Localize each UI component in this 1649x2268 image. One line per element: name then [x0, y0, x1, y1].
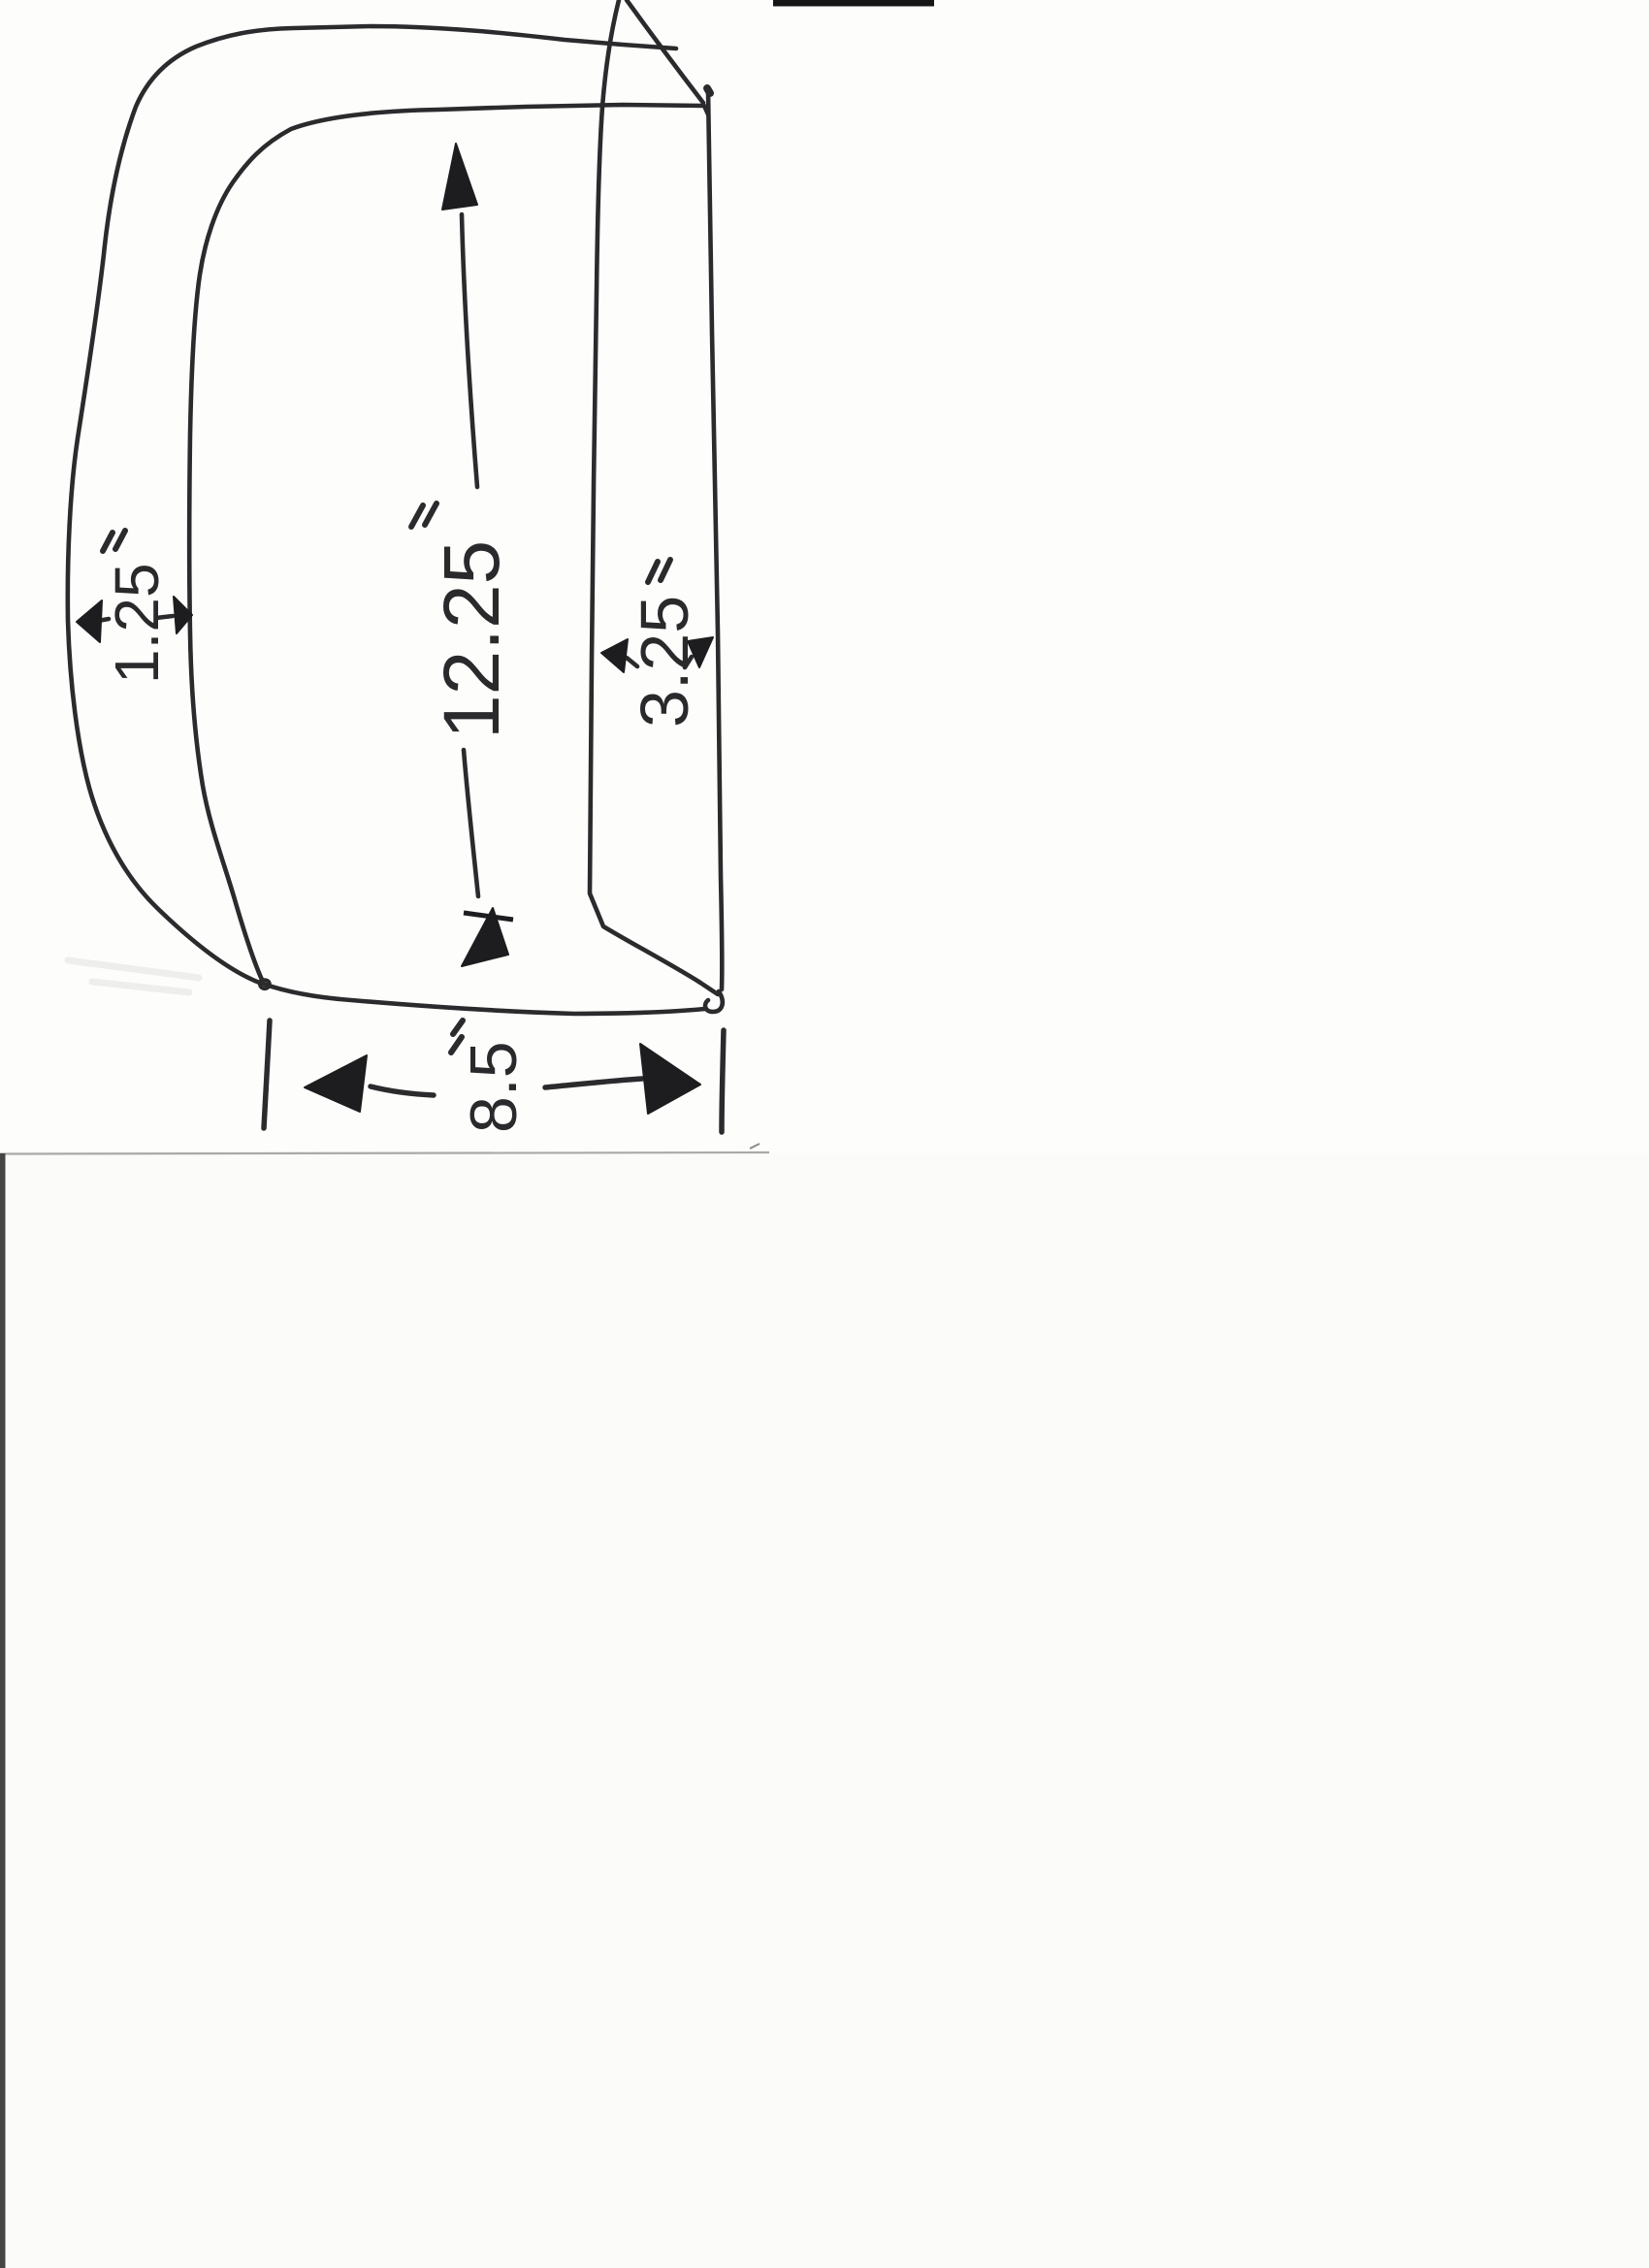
svg-text:12.25: 12.25 [428, 540, 516, 739]
svg-text:8.5: 8.5 [457, 1041, 531, 1133]
svg-text:3.25: 3.25 [627, 596, 702, 728]
svg-text:1.25: 1.25 [102, 563, 172, 684]
